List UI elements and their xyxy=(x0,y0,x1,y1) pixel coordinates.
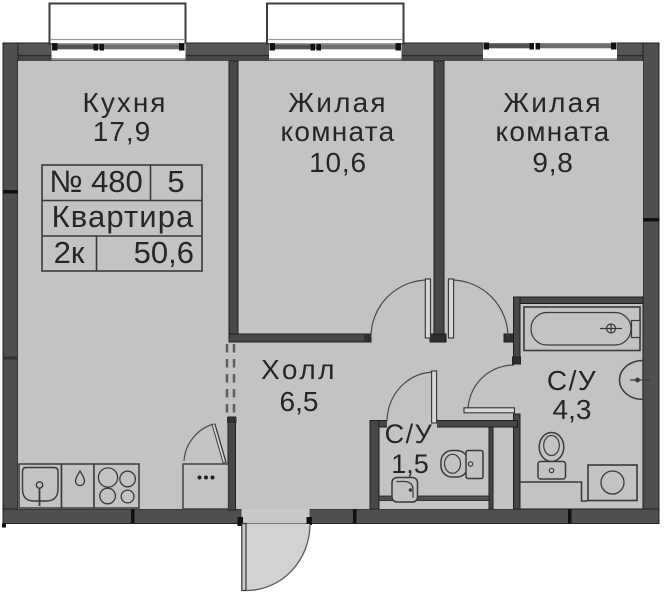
svg-text:5: 5 xyxy=(167,164,184,199)
svg-text:2к: 2к xyxy=(54,235,85,270)
svg-text:10,6: 10,6 xyxy=(309,147,367,178)
svg-text:комната: комната xyxy=(496,116,611,147)
svg-text:С/У: С/У xyxy=(385,419,434,449)
svg-text:Холл: Холл xyxy=(261,354,337,385)
svg-text:9,8: 9,8 xyxy=(532,147,573,178)
svg-text:6,5: 6,5 xyxy=(280,386,319,417)
svg-text:Квартира: Квартира xyxy=(52,199,195,234)
svg-text:17,9: 17,9 xyxy=(93,116,152,147)
svg-text:Кухня: Кухня xyxy=(83,87,168,118)
svg-text:С/У: С/У xyxy=(547,365,597,396)
svg-text:4,3: 4,3 xyxy=(553,394,592,425)
svg-text:№ 480: № 480 xyxy=(49,164,143,199)
svg-text:Жилая: Жилая xyxy=(503,87,603,118)
svg-text:1,5: 1,5 xyxy=(391,449,429,479)
svg-text:Жилая: Жилая xyxy=(288,87,388,118)
svg-text:комната: комната xyxy=(281,116,396,147)
svg-text:50,6: 50,6 xyxy=(134,235,194,270)
